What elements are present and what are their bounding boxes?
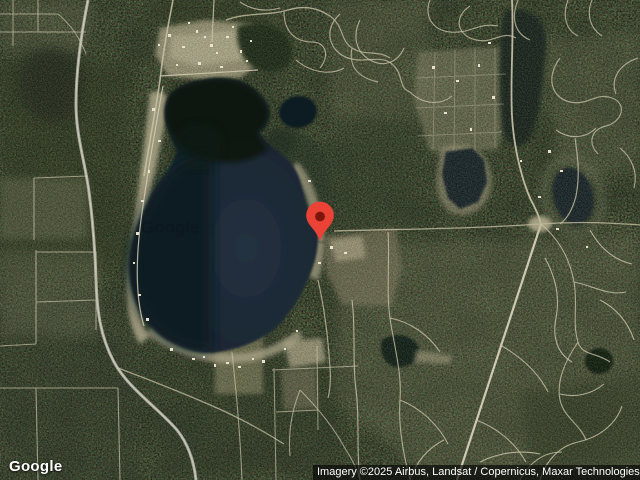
svg-text:Google: Google bbox=[141, 218, 200, 237]
